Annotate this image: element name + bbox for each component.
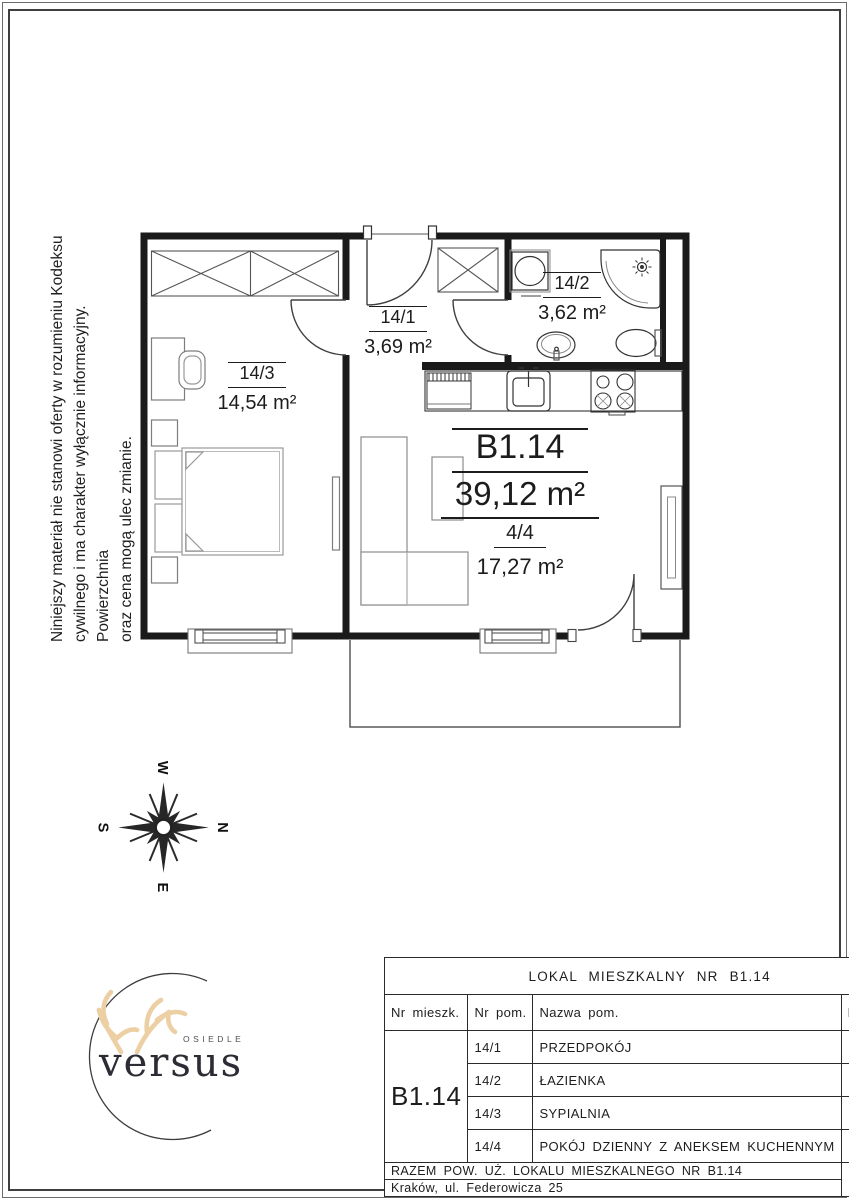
room-number: 14/3	[228, 362, 285, 388]
unit-area: 39,12 m²	[441, 473, 599, 520]
room-label-bath: 14/2 3,62 m²	[507, 272, 637, 325]
table-title: LOKAL MIESZKALNY NR B1.14	[385, 958, 849, 995]
bed-icon	[155, 448, 283, 555]
hall-wardrobe-icon	[438, 248, 498, 292]
compass-letter-e: E	[154, 882, 170, 892]
entrance-jamb-stubs	[364, 226, 437, 239]
total-area-cell: 39.12	[841, 1163, 849, 1197]
room-name-cell: ŁAZIENKA	[533, 1064, 841, 1097]
compass-rose: N E S W	[91, 755, 236, 900]
room-number: 14/1	[369, 306, 426, 332]
room-number: 14/2	[543, 272, 600, 298]
unit-id: B1.14	[452, 428, 589, 473]
address-cell: Kraków, ul. Federowicza 25	[385, 1180, 842, 1197]
compass-letter-s: S	[94, 823, 110, 833]
living-room-area: 17,27 m²	[477, 554, 564, 580]
room-no-cell: 14/4	[468, 1130, 533, 1163]
disclaimer-line: Niniejszy materiał nie stanowi oferty w …	[46, 222, 69, 642]
col-header-unit: Nr mieszk.	[385, 995, 468, 1031]
unit-id-cell: B1.14	[385, 1031, 468, 1163]
room-label-bedroom: 14/3 14,54 m²	[192, 362, 322, 415]
room-area-cell: 17.27	[841, 1130, 849, 1163]
compass-center	[156, 820, 171, 835]
entrance-door-icon	[367, 240, 432, 305]
compass-letter-n: N	[214, 822, 230, 832]
bedroom-window-icon	[188, 629, 292, 653]
room-no-cell: 14/3	[468, 1097, 533, 1130]
living-window-icon	[480, 629, 556, 653]
room-area: 3,69 m²	[364, 336, 432, 359]
room-no-cell: 14/1	[468, 1031, 533, 1064]
unit-label: B1.14 39,12 m² 4/4 17,27 m²	[428, 428, 612, 580]
unit-summary-table: LOKAL MIESZKALNY NR B1.14 Nr mieszk. Nr …	[384, 957, 849, 1197]
table-row: B1.14 14/1 PRZEDPOKÓJ 3.69	[385, 1031, 849, 1064]
room-area-cell: 14,54	[841, 1097, 849, 1130]
col-header-room-no: Nr pom.	[468, 995, 533, 1031]
kitchen-counter-icon	[425, 371, 682, 411]
compass-letter-w: W	[154, 761, 170, 775]
room-name-cell: PRZEDPOKÓJ	[533, 1031, 841, 1064]
balcony-door-icon	[578, 574, 634, 630]
room-name-cell: POKÓJ DZIENNY Z ANEKSEM KUCHENNYM	[533, 1130, 841, 1163]
room-area-cell: 3.62	[841, 1064, 849, 1097]
toilet-icon	[616, 330, 661, 357]
bedroom-radiator-icon	[333, 477, 340, 550]
nightstand-icon	[152, 420, 178, 583]
room-label-hall: 14/1 3,69 m²	[333, 306, 463, 359]
room-area-cell: 3.69	[841, 1031, 849, 1064]
living-cabinet-icon	[661, 486, 682, 589]
disclaimer-line: cywilnego i ma charakter wyłącznie infor…	[69, 222, 115, 642]
small-basin-icon	[537, 332, 575, 360]
total-label-cell: RAZEM POW. UŻ. LOKALU MIESZKALNEGO NR B1…	[385, 1163, 842, 1180]
room-area: 14,54 m²	[218, 392, 297, 415]
room-name-cell: SYPIALNIA	[533, 1097, 841, 1130]
bedroom-wardrobe-icon	[152, 251, 339, 296]
stove-icon	[591, 370, 635, 415]
logo-brand-word: versus	[99, 1040, 243, 1086]
room-no-cell: 14/2	[468, 1064, 533, 1097]
col-header-room-name: Nazwa pom.	[533, 995, 841, 1031]
developer-logo: OSIEDLE versus	[55, 948, 325, 1198]
living-room-number: 4/4	[494, 519, 546, 548]
room-area: 3,62 m²	[538, 302, 606, 325]
legal-disclaimer: Niniejszy materiał nie stanowi oferty w …	[46, 222, 138, 642]
washer-icon	[427, 373, 471, 409]
sink-icon	[507, 368, 550, 411]
col-header-area: Pow. [m²]	[841, 995, 849, 1031]
balcony-door-jambs	[568, 630, 641, 642]
